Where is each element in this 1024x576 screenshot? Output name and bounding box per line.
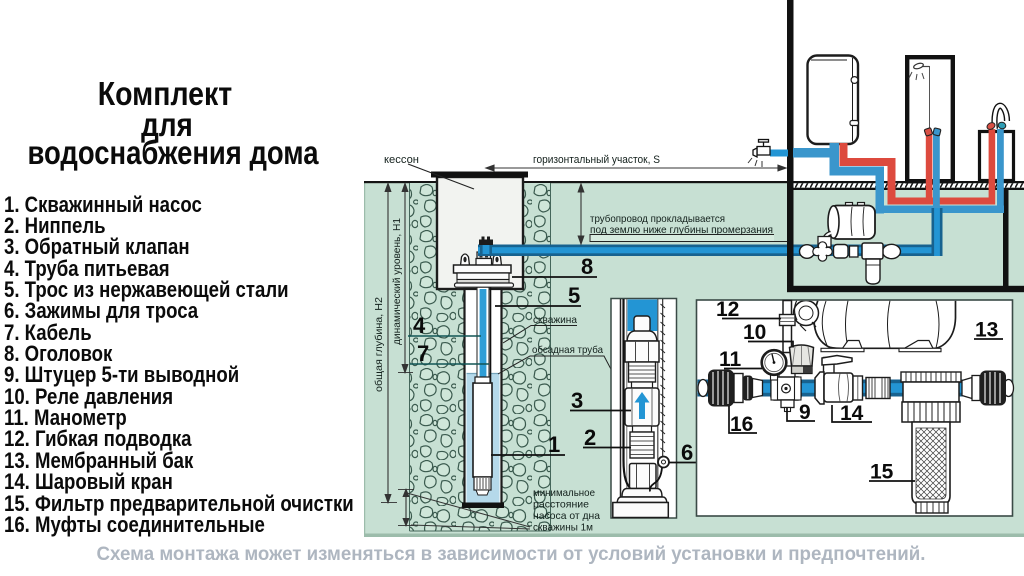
svg-text:3: 3 [571, 388, 583, 413]
svg-text:9: 9 [799, 401, 811, 424]
svg-text:7: 7 [417, 341, 429, 366]
svg-text:11: 11 [719, 348, 742, 371]
svg-text:кессон: кессон [384, 154, 419, 166]
svg-text:2: 2 [584, 425, 596, 450]
svg-text:12: 12 [716, 298, 739, 321]
svg-text:минимальное: минимальное [533, 487, 595, 499]
svg-text:6: 6 [681, 440, 693, 465]
svg-text:13: 13 [975, 319, 998, 342]
svg-text:4: 4 [413, 313, 426, 338]
svg-text:10: 10 [743, 321, 766, 344]
svg-text:16: 16 [730, 413, 753, 436]
svg-text:5: 5 [568, 283, 580, 308]
svg-text:обсадная труба: обсадная труба [532, 344, 603, 356]
svg-text:расстояние: расстояние [533, 499, 589, 511]
svg-text:горизонтальный участок, S: горизонтальный участок, S [533, 154, 660, 166]
svg-text:15: 15 [870, 461, 894, 484]
svg-text:1: 1 [548, 432, 560, 457]
svg-text:скважины 1м: скважины 1м [533, 522, 593, 534]
svg-text:14: 14 [840, 402, 864, 425]
svg-text:скважина: скважина [533, 314, 577, 326]
svg-text:общая глубина, Н2: общая глубина, Н2 [373, 297, 385, 392]
svg-text:насоса от дна: насоса от дна [533, 510, 600, 522]
svg-text:динамический уровень, Н1: динамический уровень, Н1 [391, 218, 403, 345]
svg-text:8: 8 [581, 254, 593, 279]
